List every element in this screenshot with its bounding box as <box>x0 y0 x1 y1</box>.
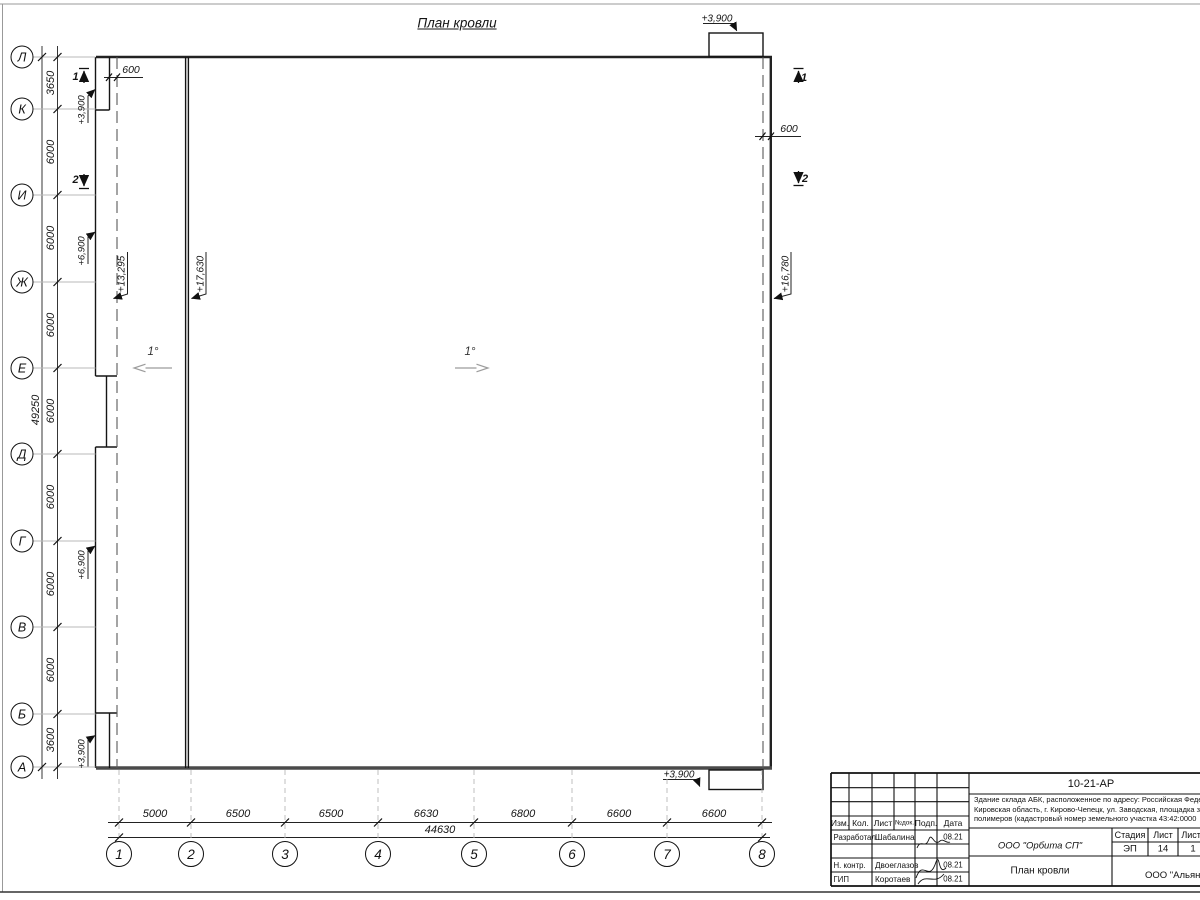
dim-horizontal-bay: 6500 <box>226 808 250 820</box>
dim-vertical-bay: 6000 <box>45 485 57 509</box>
dim-vertical-total: 49250 <box>30 395 42 426</box>
axis-circle-row-Ж: Ж <box>11 271 34 294</box>
sheet-value: 14 <box>1158 844 1169 855</box>
titleblock-col-podp: Подп. <box>915 818 938 828</box>
person-date: 08.21 <box>943 833 963 842</box>
section-mark-2: 2 <box>802 173 808 185</box>
person-date: 08.21 <box>943 875 963 884</box>
person-role: Разработал <box>834 833 876 842</box>
titleblock-doc-number: 10-21-АР <box>1068 778 1114 790</box>
dim-horizontal-bay: 6600 <box>702 808 726 820</box>
titleblock-client-company: ООО "Альянс <box>1145 870 1200 881</box>
person-role: ГИП <box>834 875 849 884</box>
axis-circle-col-5: 5 <box>461 841 487 867</box>
dim-vertical-bay: 6000 <box>45 658 57 682</box>
axis-circle-row-Д: Д <box>11 443 34 466</box>
axis-circle-row-Л: Л <box>11 46 34 69</box>
axis-circle-col-2: 2 <box>178 841 204 867</box>
canopy-elevation-mark: +3,900 <box>664 770 695 781</box>
roof-elevation-mark: +16,780 <box>780 256 791 292</box>
dim-vertical-bay: 6000 <box>45 572 57 596</box>
elevation-mark: +6,900 <box>77 550 88 579</box>
person-name: Шабалина <box>875 833 915 842</box>
dim-vertical-bay: 6000 <box>45 226 57 250</box>
axis-circle-col-1: 1 <box>106 841 132 867</box>
slope-label-left: 1° <box>148 346 159 358</box>
elevation-mark: +3,900 <box>77 739 88 768</box>
person-date: 08.21 <box>943 861 963 870</box>
dim-vertical-bay: 3600 <box>45 728 57 752</box>
dim-horizontal-bay: 5000 <box>143 808 167 820</box>
stage-value: ЭП <box>1123 844 1137 855</box>
description-line: Здание склада АБК, расположенное по адре… <box>974 795 1200 805</box>
section-mark-2: 2 <box>72 174 78 186</box>
titleblock-col-izm: Изм. <box>831 818 849 828</box>
section-mark-1: 1 <box>801 72 807 84</box>
axis-circle-row-А: А <box>11 756 34 779</box>
dim-horizontal-bay: 6630 <box>414 808 438 820</box>
axis-circle-row-Г: Г <box>11 530 34 553</box>
dim-vertical-bay: 6000 <box>45 140 57 164</box>
titleblock-description: Здание склада АБК, расположенное по адре… <box>974 795 1200 824</box>
dim-horizontal-bay: 6500 <box>319 808 343 820</box>
dim-vertical-bay: 6000 <box>45 313 57 337</box>
elevation-mark: +6,900 <box>77 236 88 265</box>
axis-circle-row-В: В <box>11 616 34 639</box>
dim-vertical-bay: 3650 <box>45 71 57 95</box>
dim-parapet-left: 600 <box>122 64 140 76</box>
canopy-elevation-mark: +3,900 <box>702 13 733 24</box>
drawing-title: План кровли <box>417 16 496 31</box>
titleblock-sheet-title: План кровли <box>1011 866 1070 877</box>
sheet-label: Лист <box>1153 830 1173 840</box>
titleblock-col-list: Лист <box>874 818 892 828</box>
drawing-linework <box>0 0 1200 900</box>
dim-horizontal-total: 44630 <box>425 824 456 836</box>
axis-circle-col-3: 3 <box>272 841 298 867</box>
total-value: 1 <box>1190 844 1195 855</box>
slope-label-right: 1° <box>465 346 476 358</box>
axis-circle-row-И: И <box>11 184 34 207</box>
total-label: Листов <box>1181 830 1200 840</box>
axis-circle-row-Е: Е <box>11 357 34 380</box>
description-line: Кировская область, г. Кирово-Чепецк, ул.… <box>974 805 1200 815</box>
axis-circle-col-6: 6 <box>559 841 585 867</box>
person-name: Коротаев <box>875 875 910 884</box>
roof-elevation-mark: +17,630 <box>195 256 206 292</box>
dim-horizontal-bay: 6600 <box>607 808 631 820</box>
axis-circle-col-4: 4 <box>365 841 391 867</box>
description-line: полимеров (кадастровый номер земельного … <box>974 814 1200 824</box>
stage-label: Стадия <box>1115 830 1146 840</box>
titleblock-col-data: Дата <box>944 818 963 828</box>
person-role: Н. контр. <box>834 861 866 870</box>
axis-circle-col-7: 7 <box>654 841 680 867</box>
person-name: Двоеглазов <box>875 861 919 870</box>
dim-vertical-bay: 6000 <box>45 399 57 423</box>
axis-circle-row-К: К <box>11 98 34 121</box>
titleblock-design-company: ООО "Орбита СП" <box>998 840 1082 851</box>
titleblock-col-kol: Кол. <box>852 818 869 828</box>
dim-horizontal-bay: 6800 <box>511 808 535 820</box>
section-mark-1: 1 <box>72 71 78 83</box>
elevation-mark: +3,900 <box>77 95 88 124</box>
axis-circle-row-Б: Б <box>11 703 34 726</box>
titleblock-col-ndok: №док. <box>895 820 914 827</box>
roof-plan-sheet: План кровли 49250 44630 600 600 +3,900 +… <box>0 0 1200 900</box>
dim-parapet-right: 600 <box>780 123 798 135</box>
axis-circle-col-8: 8 <box>749 841 775 867</box>
roof-elevation-mark: +13,295 <box>116 256 127 292</box>
